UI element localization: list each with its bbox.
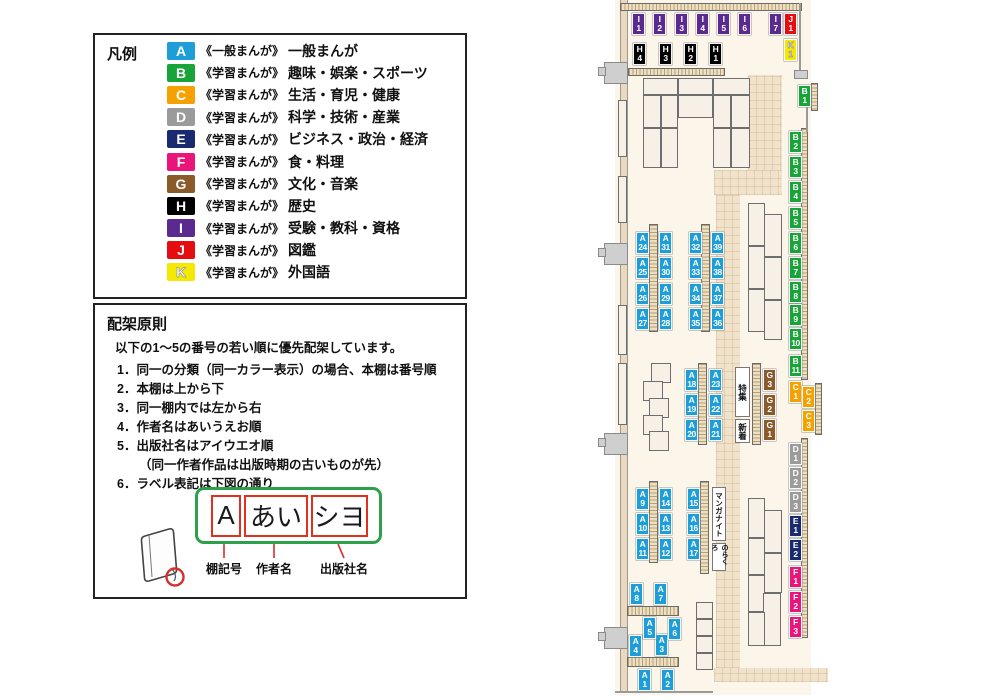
special-label-shinchaku: 新着 <box>735 419 750 443</box>
shelf <box>651 363 671 383</box>
door-notch <box>598 632 606 641</box>
shelf-label-A7: A7 <box>654 583 667 605</box>
shelf <box>748 289 765 332</box>
shelf-label-B10: B10 <box>789 328 802 350</box>
shelf-label-B9: B9 <box>789 304 802 326</box>
shelf-label-K1: K1 <box>784 39 797 61</box>
shelf-label-B5: B5 <box>789 207 802 229</box>
shelf-label-B4: B4 <box>789 181 802 203</box>
shelf-label-A26: A26 <box>636 283 649 305</box>
shelf <box>661 128 678 168</box>
shelf <box>643 95 661 128</box>
shelf-strip <box>701 224 710 332</box>
shelf-label-I4: I4 <box>696 13 709 35</box>
shelf <box>713 95 731 128</box>
wall-line <box>799 3 801 73</box>
shelf-strip <box>627 657 679 667</box>
shelf-label-E1: E1 <box>789 515 802 537</box>
shelf <box>764 553 782 593</box>
shelf <box>748 538 765 575</box>
shelf <box>696 602 713 619</box>
shelf-label-A30: A30 <box>659 257 672 279</box>
shelf <box>661 95 678 128</box>
shelf-strip <box>627 606 679 616</box>
shelf <box>643 78 678 95</box>
shelf-label-C1: C1 <box>789 381 802 403</box>
shelf-label-A17: A17 <box>687 538 700 560</box>
shelf <box>618 305 627 355</box>
shelf-label-F2: F2 <box>789 591 802 613</box>
shelf-label-A38: A38 <box>711 257 724 279</box>
shelf <box>748 612 765 646</box>
shelf-label-A39: A39 <box>711 232 724 254</box>
shelf-label-A19: A19 <box>685 394 698 416</box>
shelf-label-A24: A24 <box>636 232 649 254</box>
shelf-label-I7: I7 <box>769 13 782 35</box>
shelf-label-A16: A16 <box>687 513 700 535</box>
shelf-label-A10: A10 <box>636 513 649 535</box>
shelf-label-C3: C3 <box>802 410 815 432</box>
shelf-label-B2: B2 <box>789 131 802 153</box>
shelf <box>696 636 713 653</box>
shelf-strip <box>649 481 658 563</box>
shelf-label-G1: G1 <box>763 419 776 441</box>
special-label-tokushu: 特集 <box>735 367 750 417</box>
shelf-label-B7: B7 <box>789 257 802 279</box>
shelf-label-A12: A12 <box>659 538 672 560</box>
shelf <box>764 300 782 340</box>
shelf-label-A25: A25 <box>636 257 649 279</box>
shelf-strip <box>811 83 818 111</box>
shelf-label-A1: A1 <box>638 669 651 691</box>
shelf <box>618 100 627 157</box>
shelf <box>696 619 713 636</box>
shelf-label-A4: A4 <box>629 635 642 657</box>
shelf-label-A14: A14 <box>659 488 672 510</box>
shelf-label-A6: A6 <box>668 618 681 640</box>
wall-step <box>794 70 808 79</box>
shelf <box>678 78 713 95</box>
shelf-label-A28: A28 <box>659 308 672 330</box>
shelf-label-E2: E2 <box>789 539 802 561</box>
shelf <box>748 246 765 289</box>
shelf-label-C2: C2 <box>802 386 815 408</box>
shelf-label-D2: D2 <box>789 467 802 489</box>
shelf <box>713 78 750 95</box>
shelf-label-A36: A36 <box>711 308 724 330</box>
shelf-label-A33: A33 <box>689 257 702 279</box>
shelf-label-A32: A32 <box>689 232 702 254</box>
door <box>604 243 628 265</box>
shelf-label-G2: G2 <box>763 394 776 416</box>
shelf-label-H1: H1 <box>709 43 722 65</box>
shelf-label-H4: H4 <box>633 43 646 65</box>
special-label-norakuro: のらくろ <box>712 543 726 571</box>
shelf-strip <box>698 363 707 445</box>
shelf-label-A9: A9 <box>636 488 649 510</box>
shelf-label-D1: D1 <box>789 443 802 465</box>
shelf-label-A21: A21 <box>709 419 722 441</box>
shelf-label-A15: A15 <box>687 488 700 510</box>
shelf-label-A34: A34 <box>689 283 702 305</box>
shelf <box>731 128 750 168</box>
shelf <box>764 510 782 553</box>
shelf <box>748 203 765 246</box>
shelf-label-D3: D3 <box>789 491 802 513</box>
shelf <box>763 593 781 646</box>
shelf <box>618 176 627 223</box>
shelf-label-F1: F1 <box>789 566 802 588</box>
shelf <box>764 257 782 300</box>
shelf-strip <box>815 383 822 435</box>
door <box>604 627 628 649</box>
shelf-label-I5: I5 <box>717 13 730 35</box>
shelf <box>649 431 669 451</box>
shelf-label-A2: A2 <box>661 669 674 691</box>
shelf <box>618 363 627 425</box>
shelf-label-A23: A23 <box>709 369 722 391</box>
shelf <box>748 498 765 538</box>
shelf-label-A3: A3 <box>655 634 668 656</box>
shelf-label-B6: B6 <box>789 232 802 254</box>
shelf-label-I3: I3 <box>675 13 688 35</box>
shelf <box>696 653 713 670</box>
shelf-strip <box>628 68 725 76</box>
door <box>604 433 628 455</box>
shelf-strip <box>649 224 658 332</box>
shelf-label-J1: J1 <box>784 13 797 35</box>
shelf-label-G3: G3 <box>763 369 776 391</box>
shelf-label-I6: I6 <box>738 13 751 35</box>
shelf-label-A18: A18 <box>685 369 698 391</box>
shelf-label-A22: A22 <box>709 394 722 416</box>
shelf-label-A31: A31 <box>659 232 672 254</box>
shelf-strip <box>801 128 808 380</box>
shelf-label-H2: H2 <box>684 43 697 65</box>
shelf <box>713 128 731 168</box>
shelf-strip <box>752 363 761 445</box>
shelf-label-A11: A11 <box>636 538 649 560</box>
door <box>604 62 628 84</box>
shelf-label-A13: A13 <box>659 513 672 535</box>
door-notch <box>598 438 606 447</box>
shelf <box>678 95 713 118</box>
shelf-strip <box>700 481 709 574</box>
shelf-label-B8: B8 <box>789 281 802 303</box>
shelf-label-B11: B11 <box>789 355 802 377</box>
door-notch <box>598 67 606 76</box>
wall-line <box>806 106 808 132</box>
shelf-strip <box>620 3 802 11</box>
shelf-label-I2: I2 <box>653 13 666 35</box>
shelf-label-B3: B3 <box>789 156 802 178</box>
shelf-label-A29: A29 <box>659 283 672 305</box>
shelf-strip <box>801 438 808 638</box>
shelf-label-B1: B1 <box>798 85 811 107</box>
shelf-label-A20: A20 <box>685 419 698 441</box>
walkway <box>714 170 782 195</box>
shelf-label-F3: F3 <box>789 616 802 638</box>
wall-line <box>615 691 713 693</box>
shelf-label-I1: I1 <box>632 13 645 35</box>
shelf <box>643 128 661 168</box>
shelf-label-A35: A35 <box>689 308 702 330</box>
floor-map: A1A2A3A4A5A6A7A8A9A10A11A12A13A14A15A16A… <box>0 0 1000 700</box>
walkway <box>714 668 828 682</box>
shelf-label-A8: A8 <box>630 583 643 605</box>
shelf <box>731 95 750 128</box>
shelf-label-A37: A37 <box>711 283 724 305</box>
shelf-label-A5: A5 <box>643 617 656 639</box>
walkway <box>748 75 782 173</box>
shelf-label-H3: H3 <box>659 43 672 65</box>
special-label-manganight: マンガナイト <box>712 487 726 541</box>
shelf-label-A27: A27 <box>636 308 649 330</box>
door-notch <box>598 248 606 257</box>
shelf <box>764 214 782 257</box>
